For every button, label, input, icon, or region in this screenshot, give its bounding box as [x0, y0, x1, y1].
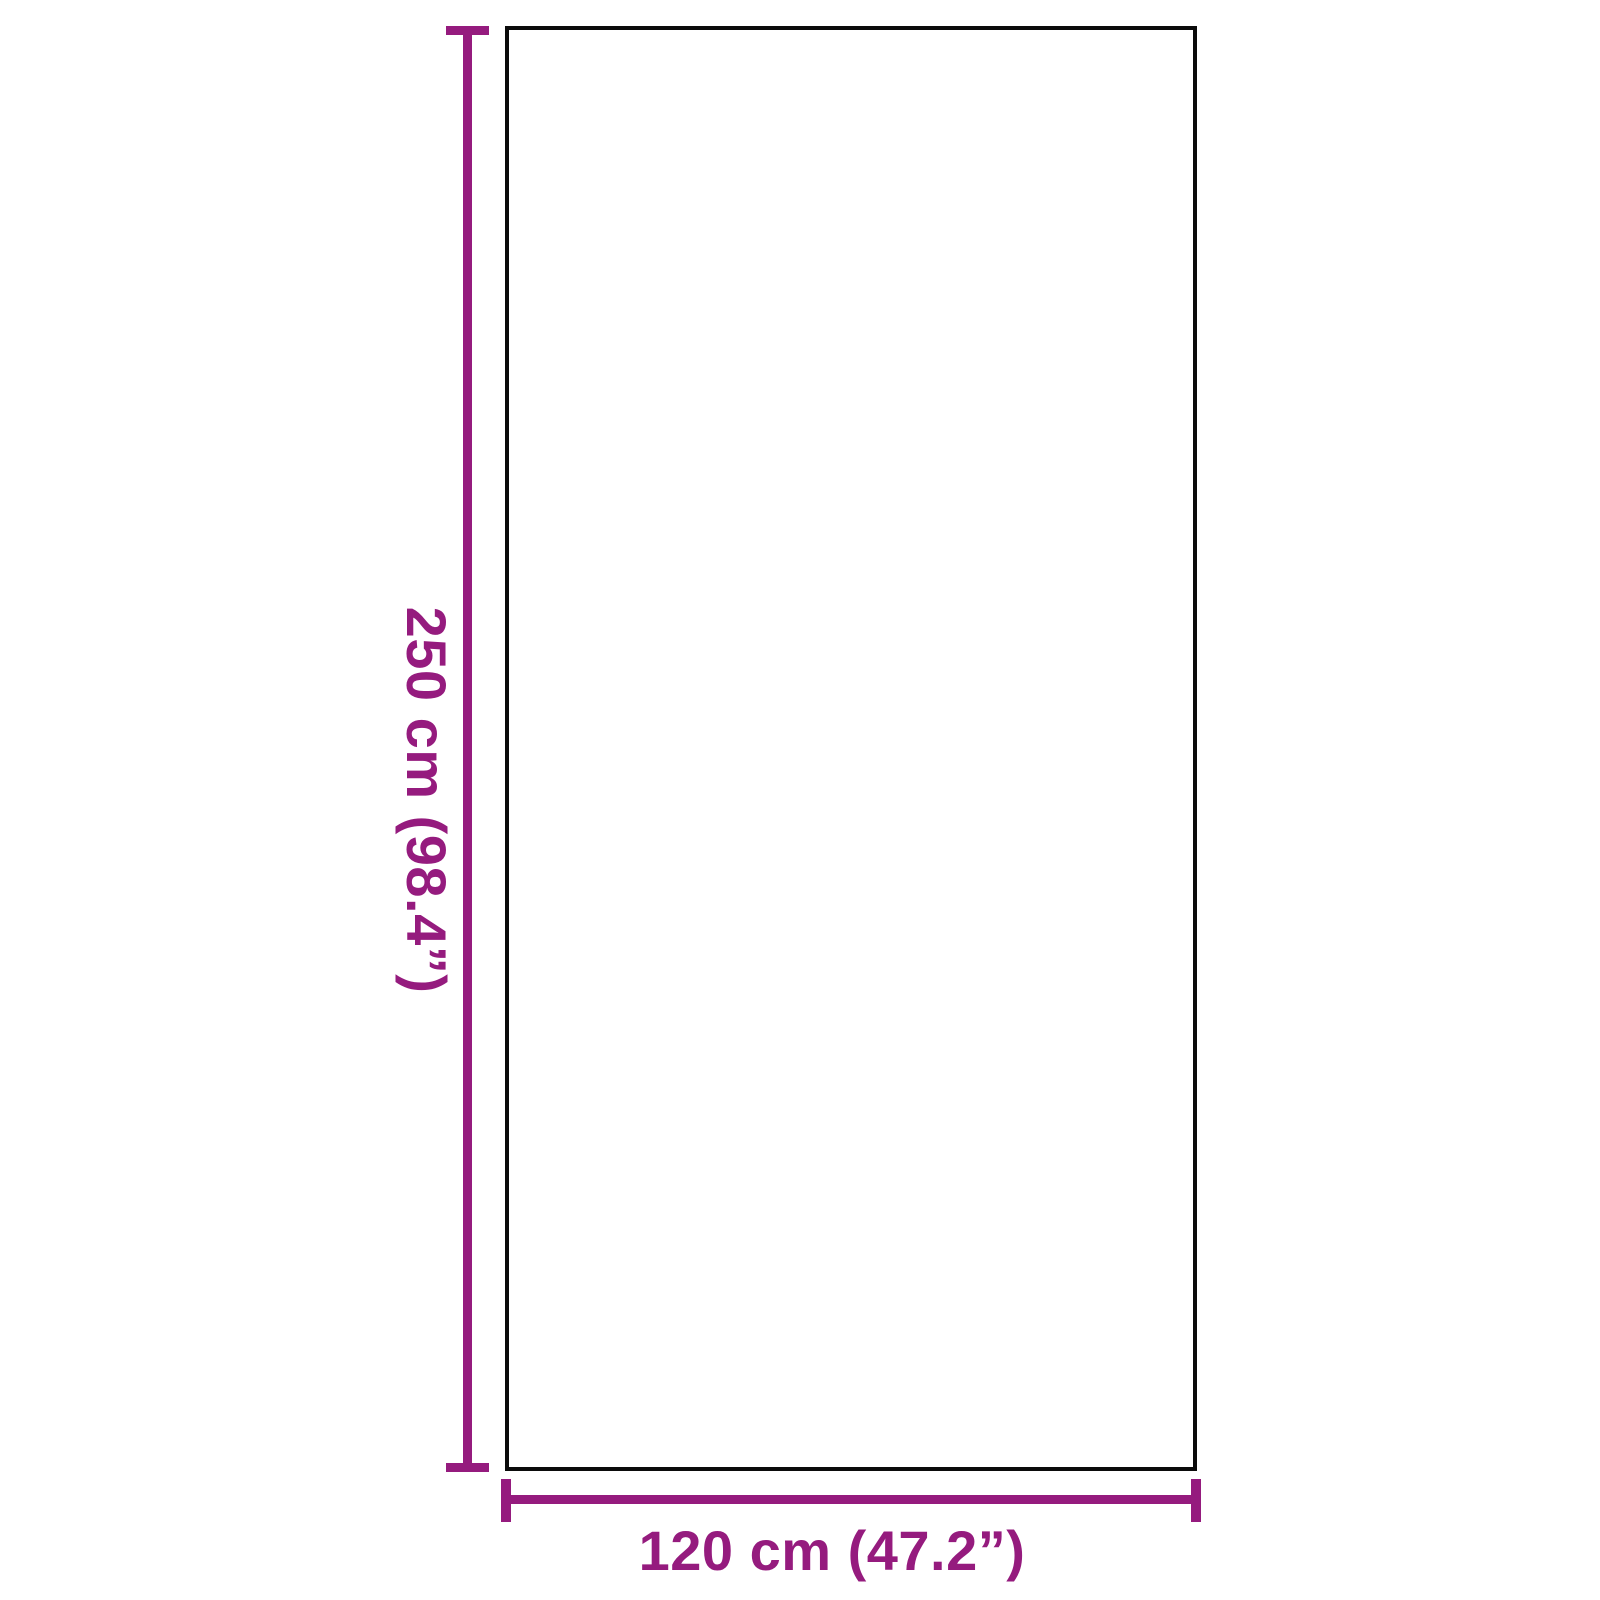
height-dimension-label: 250 cm (98.4”) [398, 607, 454, 994]
width-dimension-line [505, 1495, 1197, 1504]
dimension-diagram-canvas: 250 cm (98.4”) 120 cm (47.2”) [0, 0, 1600, 1600]
height-dimension-line [463, 26, 472, 1472]
width-dimension-label: 120 cm (47.2”) [639, 1523, 1026, 1579]
width-dimension-cap-right [1191, 1479, 1201, 1522]
panel-outline [505, 26, 1197, 1471]
height-dimension-cap-bottom [446, 1463, 489, 1472]
height-dimension-cap-top [446, 26, 489, 35]
width-dimension-cap-left [501, 1479, 511, 1522]
